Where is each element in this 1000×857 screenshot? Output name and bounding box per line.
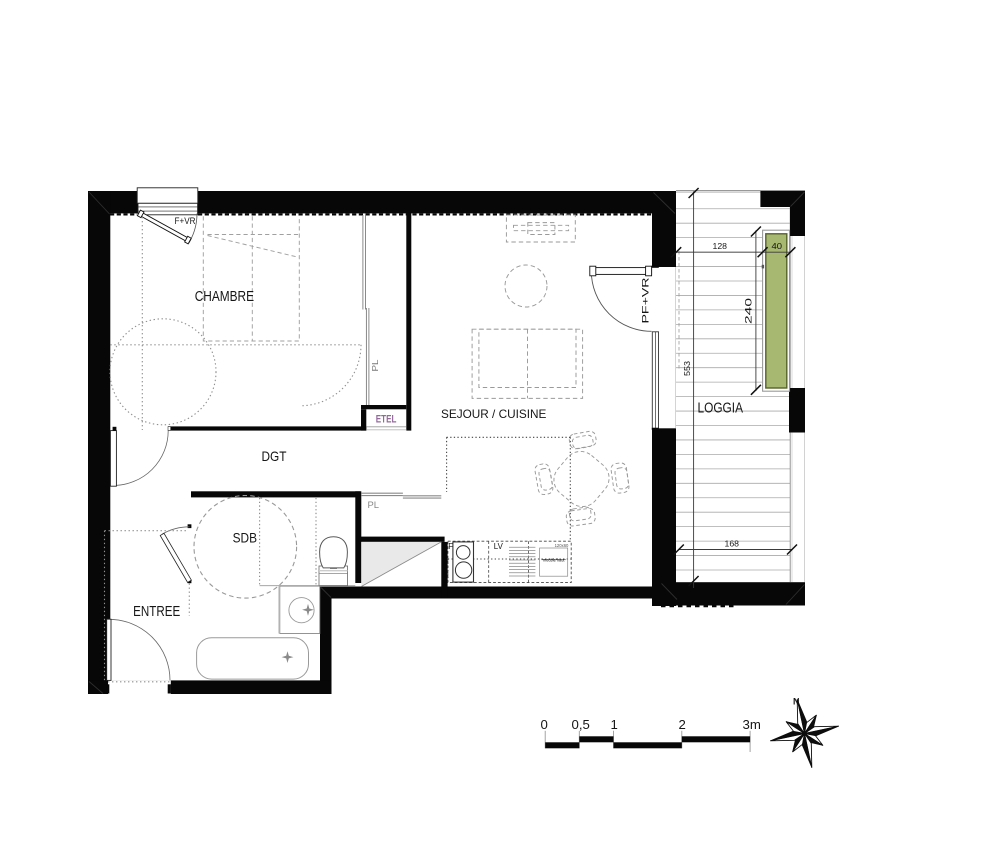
svg-text:SDB: SDB	[233, 530, 257, 546]
svg-text:LOGGIA: LOGGIA	[698, 400, 744, 417]
svg-text:553: 553	[683, 361, 692, 376]
svg-text:240: 240	[743, 298, 753, 324]
svg-text:ENTREE: ENTREE	[133, 604, 180, 620]
svg-text:PF+VR: PF+VR	[641, 277, 651, 324]
svg-text:128: 128	[713, 241, 728, 251]
svg-text:PL: PL	[370, 359, 380, 371]
svg-text:40: 40	[772, 242, 783, 251]
svg-text:LV: LV	[494, 541, 503, 551]
svg-text:168: 168	[725, 538, 740, 548]
svg-text:2: 2	[679, 717, 686, 732]
svg-text:F: F	[448, 542, 453, 551]
svg-text:PL: PL	[368, 500, 380, 510]
svg-text:0: 0	[541, 717, 548, 732]
svg-text:0,5: 0,5	[572, 717, 590, 732]
svg-text:DGT: DGT	[262, 448, 287, 464]
svg-text:CHAMBRE: CHAMBRE	[195, 288, 254, 305]
svg-text:1: 1	[611, 717, 618, 732]
svg-text:3m: 3m	[743, 717, 761, 732]
svg-text:120x60: 120x60	[555, 543, 569, 548]
svg-text:ETEL: ETEL	[376, 413, 397, 425]
svg-text:F+VR: F+VR	[175, 216, 196, 227]
svg-text:SEJOUR / CUISINE: SEJOUR / CUISINE	[441, 407, 546, 421]
